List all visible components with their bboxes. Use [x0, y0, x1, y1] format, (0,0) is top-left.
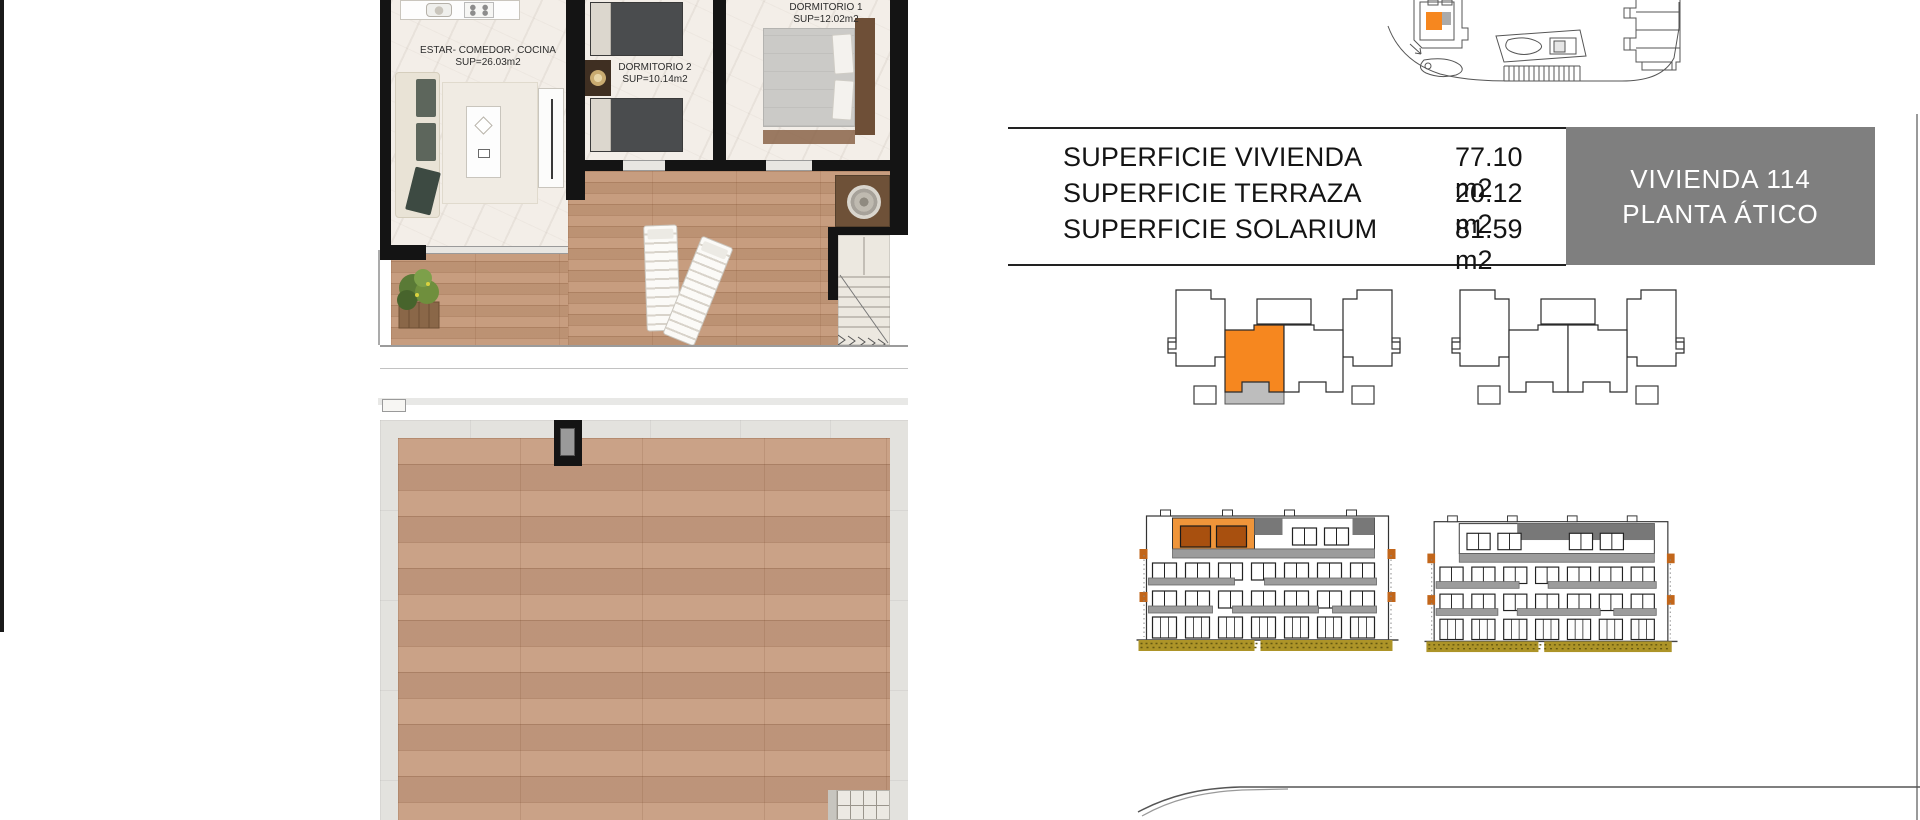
solarium-stair-edge: [828, 790, 836, 820]
site-parking: [1504, 66, 1580, 81]
key-plan-highlight-unit: [1225, 325, 1284, 392]
apartment-floorplan: ESTAR- COMEDOR- COCINA SUP=26.03m2 DORMI…: [378, 0, 908, 405]
solarium-deck: [398, 438, 890, 820]
terrace-door-1: [623, 160, 665, 171]
surface-summary-table: SUPERFICIE VIVIENDA 77.10 m2 SUPERFICIE …: [1008, 127, 1566, 266]
headboard: [855, 18, 875, 135]
wall-left: [380, 0, 391, 247]
facade-orange-accent: [1140, 549, 1148, 559]
surface-label: SUPERFICIE TERRAZA: [1063, 178, 1362, 209]
key-plan-highlighted: [1166, 286, 1402, 413]
washer-icon: [847, 185, 881, 219]
chimney: [554, 420, 582, 466]
coffee-table: [466, 106, 501, 178]
hedge: [1139, 640, 1393, 651]
roof-chimneys: [1161, 510, 1357, 516]
terrace-door-2: [766, 160, 812, 171]
pillow: [832, 79, 855, 120]
living-terrace-glass-door: [426, 246, 568, 254]
cooktop-icon: [464, 2, 494, 18]
surface-label: SUPERFICIE SOLARIUM: [1063, 214, 1377, 245]
wall-bedroom2-bedroom1: [713, 0, 726, 163]
bedroom1-label: DORMITORIO 1 SUP=12.02m2: [766, 2, 886, 26]
bedroom2-bed-2: [590, 98, 683, 152]
unit-badge: VIVIENDA 114 PLANTA ÁTICO: [1566, 127, 1875, 265]
elevation-plain: [1424, 513, 1678, 654]
left-sheet-edge: [0, 0, 4, 632]
table-row: SUPERFICIE VIVIENDA 77.10 m2: [1063, 138, 1566, 174]
unit-number: VIVIENDA 114: [1630, 162, 1811, 196]
tv-console: [538, 88, 564, 188]
living-room-label: ESTAR- COMEDOR- COCINA SUP=26.03m2: [408, 45, 568, 69]
site-building-left: [1414, 0, 1468, 48]
site-highlight-unit: [1426, 12, 1442, 30]
unit-floor: PLANTA ÁTICO: [1622, 197, 1818, 231]
bedroom1-bench: [763, 130, 855, 144]
table-row: SUPERFICIE SOLARIUM 81.59 m2: [1063, 210, 1566, 246]
hedge: [1426, 641, 1671, 652]
solarium-floorplan: [378, 399, 910, 820]
surface-value: 81.59 m2: [1455, 214, 1566, 276]
surface-label: SUPERFICIE VIVIENDA: [1063, 142, 1362, 173]
pillow: [832, 33, 855, 74]
laundry-nook: [835, 175, 890, 227]
elevation-highlighted: [1136, 507, 1399, 653]
kitchen-counter: [400, 0, 520, 20]
solarium-ledge: [382, 399, 406, 412]
table-row: SUPERFICIE TERRAZA 20.12 m2: [1063, 174, 1566, 210]
solarium-staircase: [836, 790, 890, 820]
right-sheet-border: [1916, 114, 1918, 820]
wall-left-corner: [380, 245, 426, 260]
site-pool-area: [1496, 30, 1586, 62]
staircase: [838, 235, 890, 345]
roof-chimneys: [1448, 516, 1637, 522]
key-plan-plain: [1450, 286, 1686, 413]
bedroom2-label: DORMITORIO 2 SUP=10.14m2: [600, 62, 710, 86]
wall-stair-side: [828, 227, 838, 300]
bedroom2-bed-1: [590, 2, 683, 56]
wall-washer-bottom: [832, 227, 908, 235]
section-curve: [1128, 778, 1920, 820]
terrace-parapet: [378, 250, 380, 345]
plant-icon: [393, 262, 445, 330]
sofa: [395, 72, 440, 218]
site-location-sketch: [1384, 0, 1690, 95]
kitchen-sink-icon: [426, 3, 452, 17]
plan-sheet: ESTAR- COMEDOR- COCINA SUP=26.03m2 DORMI…: [0, 0, 1920, 820]
site-building-right: [1624, 0, 1680, 70]
wall-right: [890, 0, 908, 232]
wall-living-bedroom2: [566, 0, 585, 200]
